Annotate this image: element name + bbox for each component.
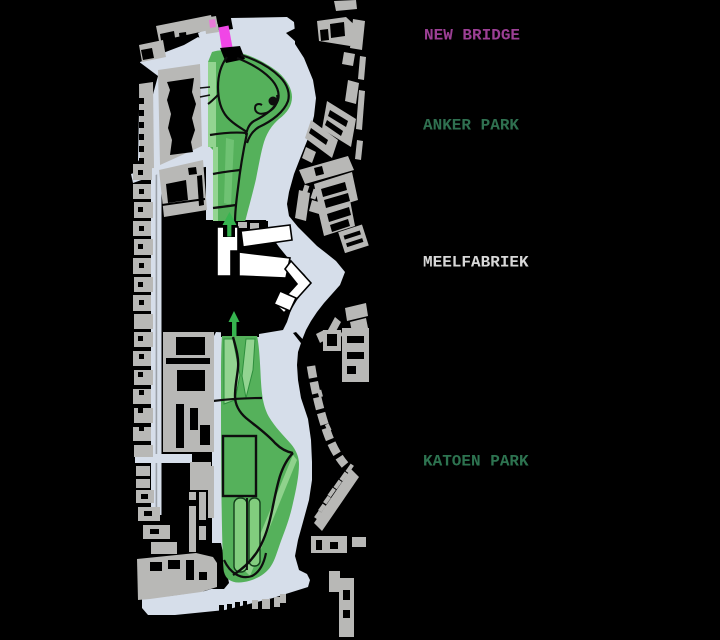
svg-text:NEW BRIDGE: NEW BRIDGE	[424, 27, 520, 45]
svg-text:KATOEN PARK: KATOEN PARK	[423, 453, 529, 471]
svg-text:MEELFABRIEK: MEELFABRIEK	[423, 254, 529, 272]
svg-text:ANKER PARK: ANKER PARK	[423, 117, 519, 135]
